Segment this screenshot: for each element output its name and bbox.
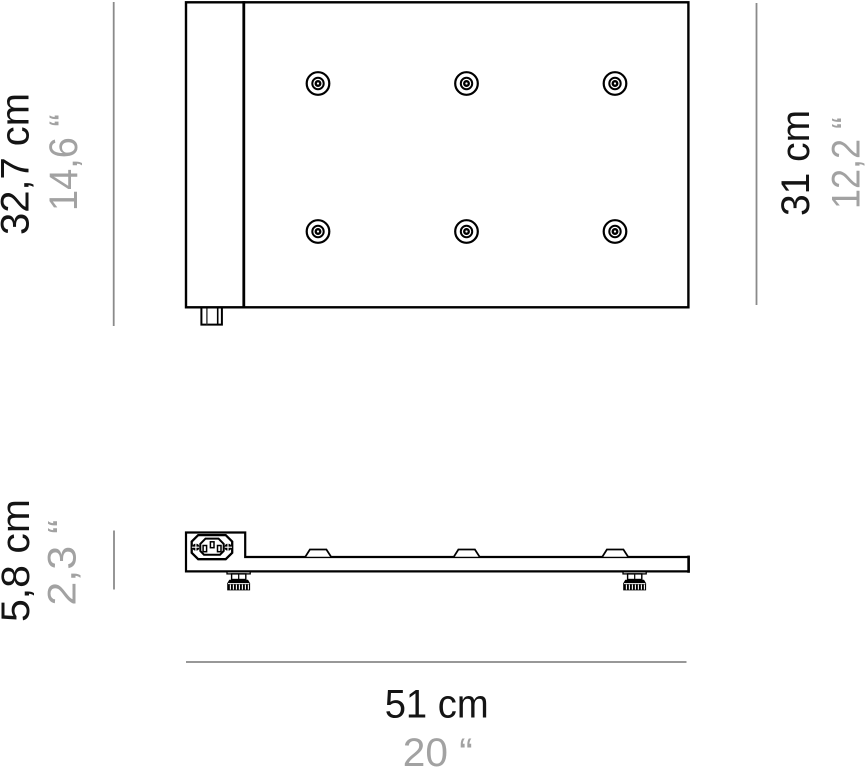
svg-text:12,2 “: 12,2 “ [825,117,867,209]
svg-text:51 cm: 51 cm [385,683,489,727]
svg-text:5,8 cm: 5,8 cm [0,499,38,622]
svg-text:31 cm: 31 cm [774,110,818,216]
svg-text:2,3 “: 2,3 “ [41,520,85,606]
svg-text:32,7 cm: 32,7 cm [0,93,38,235]
svg-text:14,6 “: 14,6 “ [42,114,86,211]
svg-text:20 “: 20 “ [403,731,473,768]
